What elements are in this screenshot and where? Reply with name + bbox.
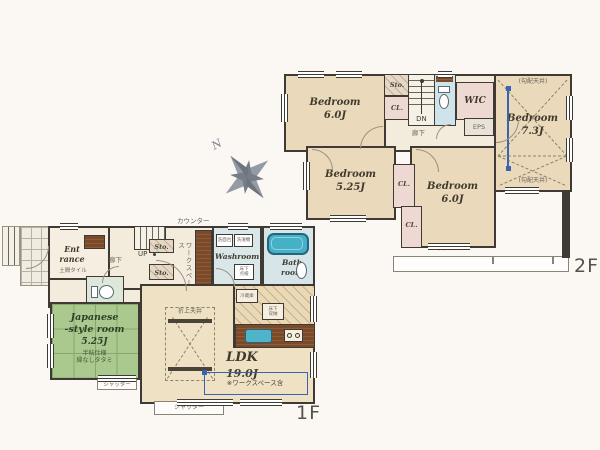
window xyxy=(47,314,54,338)
window xyxy=(281,94,288,122)
closet-2f-b-label: CL. xyxy=(394,180,414,188)
washing-machine: 洗濯機 xyxy=(234,234,253,247)
tatami-note-2: 縁なしタタミ xyxy=(52,358,137,365)
window xyxy=(505,187,539,194)
japanese-name-2: -style room xyxy=(52,324,137,336)
coffered-ceiling: 折上天井 xyxy=(165,307,215,381)
window xyxy=(177,399,233,406)
japanese-name-1: Japanese xyxy=(52,312,137,324)
closet-2f-c-label: CL. xyxy=(402,221,421,229)
bath-oval xyxy=(296,262,307,279)
kitchen-sink xyxy=(245,329,272,343)
stairs-direction-dot xyxy=(420,79,424,83)
floor-2-label: 2F xyxy=(574,255,599,277)
entry-steps xyxy=(2,226,20,266)
closet-2f-c: CL. xyxy=(401,206,422,248)
entrance-name-2: rance xyxy=(52,254,92,264)
room-entrance: Ent rance 土間タイル xyxy=(48,226,110,280)
closet-2f-a-label: CL. xyxy=(385,104,409,112)
bedroom-ml-size: 5.25J xyxy=(308,181,393,194)
eps-label: EPS xyxy=(465,124,493,131)
compass-icon xyxy=(214,146,280,208)
window xyxy=(47,344,54,368)
window xyxy=(566,138,573,162)
shutter-bottom-label: シャッター xyxy=(155,405,223,412)
ceiling-beam xyxy=(168,319,212,323)
section-dot-top xyxy=(506,86,511,91)
counter-label: カウンター xyxy=(177,218,210,225)
room-ldk: 冷蔵庫 床下収納 折上天井 LDK 19.0J ※ワークスペー xyxy=(140,284,315,404)
bedroom-mr-size: 6.0J xyxy=(412,193,493,206)
washer-label: 洗濯機 xyxy=(235,238,252,243)
japanese-size: 5.25J xyxy=(52,337,137,349)
window xyxy=(270,223,302,230)
hall-1f-label: 廊下 xyxy=(109,257,122,264)
sloped-ceiling-note-top: (勾配天井) xyxy=(504,79,562,86)
wic-label: WIC xyxy=(457,96,493,108)
washroom-name: Washroom xyxy=(215,252,259,262)
storage-1f-a-label: Sto. xyxy=(150,243,173,251)
bedroom-tl-name: Bedroom xyxy=(292,96,378,109)
entrance-name-1: Ent xyxy=(52,244,92,254)
section-dot-bottom xyxy=(506,166,511,171)
room-bathroom: Bath room xyxy=(262,226,315,290)
stove xyxy=(284,329,303,342)
balcony-2f xyxy=(393,256,569,272)
floor-hatch: 床下点検 xyxy=(234,264,254,280)
burner xyxy=(295,333,300,338)
closet-2f-b: CL. xyxy=(393,164,415,208)
vanity: 洗面台 xyxy=(216,234,233,247)
stairs-2f: DN xyxy=(408,74,436,126)
storage-1f-a: Sto. xyxy=(149,239,174,253)
window xyxy=(330,215,366,222)
workspace-note-box: ※ワークスペース含 xyxy=(204,372,308,395)
coffered-label: 折上天井 xyxy=(166,309,214,316)
window xyxy=(298,71,324,78)
window xyxy=(438,71,452,78)
window xyxy=(303,162,310,190)
window xyxy=(98,375,136,382)
wall-stub-right xyxy=(562,190,570,258)
balcony-tick-1 xyxy=(492,256,494,264)
toilet-2f-bowl xyxy=(439,94,449,109)
fridge-label: 冷蔵庫 xyxy=(237,294,257,299)
balcony-tick-2 xyxy=(552,256,554,264)
stairs-up-dot xyxy=(153,253,156,256)
wic-2f: WIC xyxy=(456,82,494,120)
underfloor-label: 床下収納 xyxy=(263,307,283,317)
floor-plan-canvas: Bedroom 6.0J (勾配天井) Bedroom 7.3J (勾配天井) … xyxy=(0,0,600,450)
sloped-ceiling-note-bottom: (勾配天井) xyxy=(504,178,562,185)
window xyxy=(310,296,317,322)
closet-2f-a: CL. xyxy=(384,96,410,120)
stairs-dn-label: DN xyxy=(409,115,434,123)
workspace-counter xyxy=(195,230,212,288)
window xyxy=(60,223,78,230)
underfloor-storage: 床下収納 xyxy=(262,303,284,320)
hall-2f-label: 廊下 xyxy=(412,130,425,137)
bedroom-mr-name: Bedroom xyxy=(412,180,493,193)
burner xyxy=(287,333,292,338)
stairs-direction-line xyxy=(421,80,422,114)
storage-2f-label: Sto. xyxy=(385,81,409,89)
bathtub-inner xyxy=(271,237,303,250)
fridge: 冷蔵庫 xyxy=(236,289,258,303)
window xyxy=(240,399,282,406)
stairs-up-label: UP xyxy=(138,250,147,258)
toilet-2f-tank xyxy=(438,86,450,93)
shutter-left-label: シャッター xyxy=(98,382,136,388)
ldk-name: LDK xyxy=(212,350,272,367)
window xyxy=(428,243,470,250)
workspace-note-dot xyxy=(202,370,207,375)
window xyxy=(566,96,573,120)
bedroom-tl-size: 6.0J xyxy=(292,109,378,122)
storage-2f: Sto. xyxy=(384,74,410,96)
floor-1-label: 1F xyxy=(296,402,321,424)
workspace-note: ※ワークスペース含 xyxy=(205,380,305,387)
toilet-1f-bowl xyxy=(99,285,114,299)
window xyxy=(336,71,362,78)
toilet-1f-tank xyxy=(91,286,98,298)
room-japanese: Japanese -style room 5.25J 半帖仕様 縁なしタタミ xyxy=(50,302,140,380)
window xyxy=(310,352,317,378)
floor-hatch-label: 床下点検 xyxy=(235,267,253,277)
window xyxy=(228,223,248,230)
eps-2f: EPS xyxy=(464,118,494,136)
entrance-note: 土間タイル xyxy=(52,268,94,274)
vanity-label: 洗面台 xyxy=(217,238,232,243)
toilet-2f xyxy=(434,74,456,126)
